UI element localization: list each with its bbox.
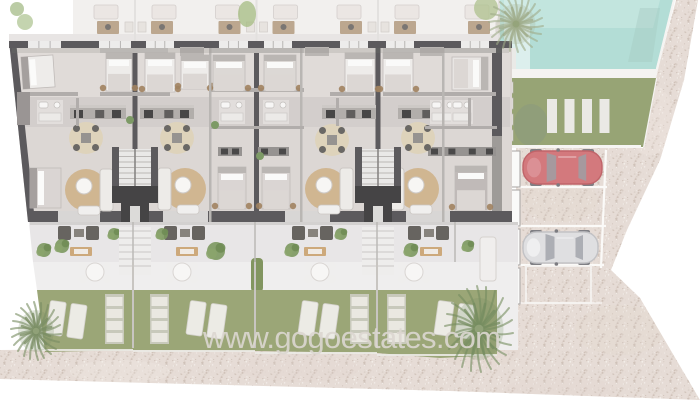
svg-text:www.gogoestates.com: www.gogoestates.com [202,320,501,355]
